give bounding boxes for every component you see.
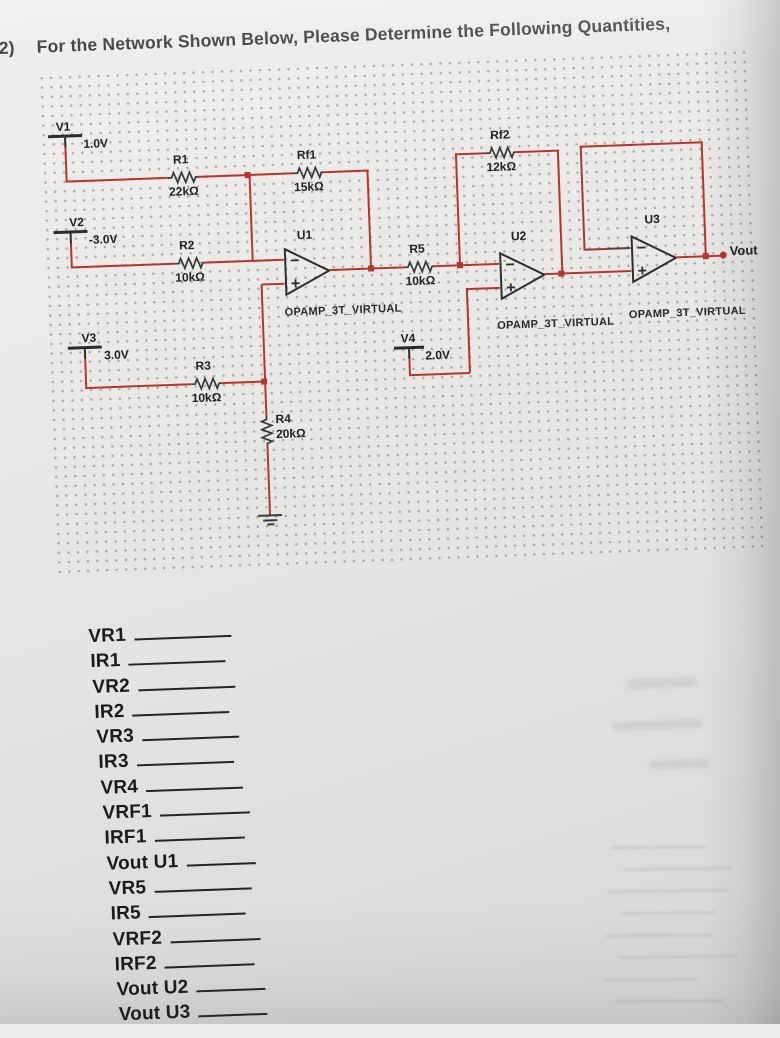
blank-label: IR2 <box>94 701 125 723</box>
answer-blanks-list: VR1IR1VR2IR2VR3IR3VR4VRF1IRF1Vout U1VR5I… <box>88 620 268 1031</box>
wire <box>70 243 73 267</box>
junction-dot <box>703 253 709 259</box>
resistor-r5-value: 10kΩ <box>405 273 435 288</box>
question-number: 2) <box>0 37 15 58</box>
source-v2-label: V2 <box>69 215 84 230</box>
wire <box>64 148 67 182</box>
blank-answer-line[interactable] <box>186 859 255 867</box>
blank-row: Vout U3 <box>118 999 268 1030</box>
blank-answer-line[interactable] <box>137 758 234 767</box>
blank-answer-line[interactable] <box>146 783 243 792</box>
wire <box>580 147 586 250</box>
wire <box>557 150 564 275</box>
opamp-u2-model: OPAMP_3T_VIRTUAL <box>497 316 614 332</box>
resistor-rf2-value: 12kΩ <box>486 159 516 174</box>
blank-label: Vout U2 <box>116 977 189 1001</box>
bleedthrough-line <box>610 846 705 849</box>
opamp-u1-icon <box>283 246 333 302</box>
source-v3-value: 3.0V <box>104 347 129 362</box>
wire <box>323 170 368 174</box>
source-v4-value: 2.0V <box>425 348 450 363</box>
blank-label: VRF2 <box>112 927 162 950</box>
blank-answer-line[interactable] <box>170 935 260 943</box>
wire <box>583 248 608 251</box>
blank-answer-line[interactable] <box>155 834 245 842</box>
bleedthrough-line <box>623 867 730 870</box>
opamp-u1-label: U1 <box>297 228 313 243</box>
bleedthrough-line <box>616 1000 723 1003</box>
blank-answer-line[interactable] <box>199 1010 268 1018</box>
blank-answer-line[interactable] <box>129 657 226 666</box>
blank-label: IRF2 <box>114 953 157 976</box>
bleedthrough-line <box>606 934 713 937</box>
wire <box>261 285 267 382</box>
wire <box>374 266 404 269</box>
wire <box>66 177 168 183</box>
resistor-r3-label: R3 <box>195 358 211 373</box>
blank-label: IR3 <box>98 751 129 773</box>
source-v2-value: -3.0V <box>89 232 118 247</box>
resistor-rf1-label: Rf1 <box>297 147 317 162</box>
bleedthrough-line <box>621 912 716 915</box>
wire <box>701 141 707 257</box>
resistor-r1-value: 22kΩ <box>169 184 199 199</box>
wire <box>198 174 249 178</box>
blank-label: Vout U3 <box>118 1002 191 1026</box>
wire <box>516 150 559 154</box>
bleedthrough-line <box>603 978 698 981</box>
opamp-u1-model: OPAMP_3T_VIRTUAL <box>284 302 401 318</box>
blank-label: IRF1 <box>104 827 147 850</box>
blank-label: IR5 <box>110 903 141 925</box>
blank-label: VR1 <box>88 625 126 647</box>
resistor-r4-value: 20kΩ <box>276 426 306 441</box>
blank-answer-line[interactable] <box>133 708 230 717</box>
resistor-r2-value: 10kΩ <box>175 270 205 285</box>
wire <box>466 288 471 373</box>
circuit-schematic: V1 1.0V R1 22kΩ Rf1 15kΩ V2 <box>34 45 766 579</box>
wire <box>580 141 703 148</box>
blank-answer-line[interactable] <box>149 910 246 919</box>
source-v1-value: 1.0V <box>83 136 108 151</box>
wire <box>434 263 499 267</box>
vout-label: Vout <box>729 242 757 258</box>
wire <box>85 383 191 389</box>
wire <box>71 263 175 269</box>
wire <box>606 247 630 250</box>
wire <box>205 259 284 264</box>
blank-answer-line[interactable] <box>165 960 255 968</box>
opamp-u3-model: OPAMP_3T_VIRTUAL <box>629 305 746 321</box>
wire <box>676 255 724 259</box>
blank-answer-line[interactable] <box>138 682 235 691</box>
worksheet-page: 2)For the Network Shown Below, Please De… <box>0 0 780 1038</box>
source-v4-label: V4 <box>400 331 415 346</box>
bleedthrough-mark <box>613 719 703 731</box>
blank-answer-line[interactable] <box>154 884 251 893</box>
bleedthrough-line <box>618 955 737 958</box>
wire <box>408 359 411 375</box>
wire <box>409 372 470 376</box>
wire <box>84 359 87 388</box>
resistor-r4-label: R4 <box>275 412 291 427</box>
wire <box>249 172 294 176</box>
opamp-u2-icon <box>499 250 549 306</box>
blank-answer-line[interactable] <box>134 632 231 641</box>
resistor-r3-value: 10kΩ <box>191 390 221 405</box>
bleedthrough-mark <box>649 758 709 769</box>
blank-label: VR2 <box>92 675 130 697</box>
wire <box>455 152 486 155</box>
bleedthrough-line <box>608 889 727 892</box>
blank-label: VRF1 <box>102 801 152 824</box>
wire <box>266 445 271 515</box>
wire <box>455 153 461 265</box>
wire <box>262 283 285 286</box>
resistor-rf2-label: Rf2 <box>490 127 510 142</box>
vout-terminal-dot <box>720 251 727 258</box>
blank-label: Vout U1 <box>106 851 179 875</box>
blank-answer-line[interactable] <box>142 733 239 742</box>
wire <box>221 380 266 384</box>
opamp-u2-label: U2 <box>511 229 527 244</box>
opamp-u3-icon <box>630 233 680 289</box>
blank-answer-line[interactable] <box>160 808 250 816</box>
opamp-u3-label: U3 <box>644 212 660 227</box>
bleedthrough-mark <box>626 677 696 690</box>
blank-label: VR3 <box>96 726 134 748</box>
blank-label: VR5 <box>108 877 146 899</box>
wire <box>466 287 500 290</box>
source-v3-label: V3 <box>81 331 96 346</box>
resistor-r1-label: R1 <box>173 152 189 167</box>
resistor-r2-label: R2 <box>179 238 195 253</box>
resistor-r5-label: R5 <box>409 242 425 257</box>
resistor-rf1-value: 15kΩ <box>294 179 324 194</box>
blank-answer-line[interactable] <box>196 985 265 993</box>
wire <box>366 170 372 269</box>
source-v1-label: V1 <box>55 119 70 134</box>
blank-label: VR4 <box>100 776 138 798</box>
blank-label: IR1 <box>90 650 121 672</box>
wire <box>264 381 267 415</box>
wire <box>249 175 254 262</box>
